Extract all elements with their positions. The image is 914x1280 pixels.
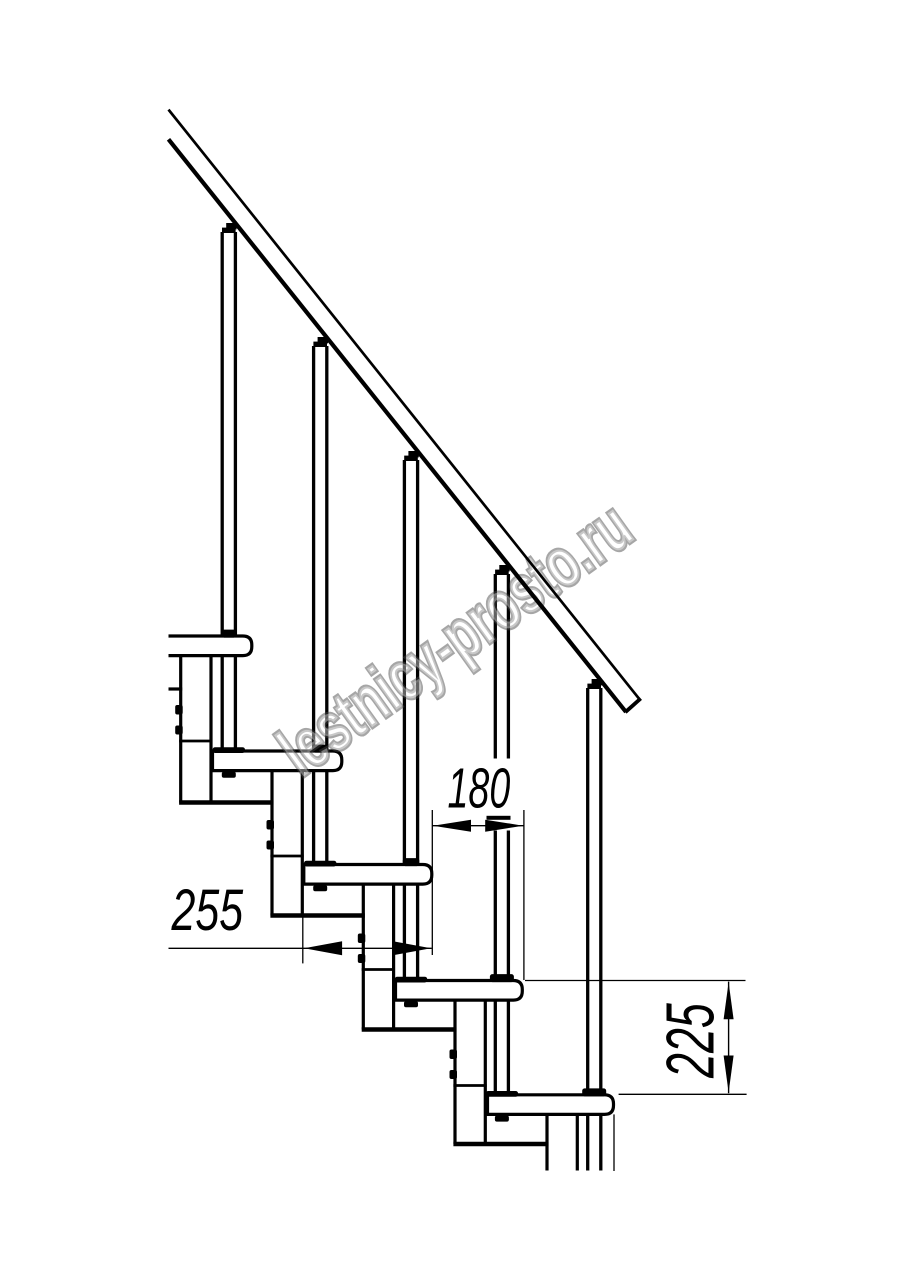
svg-text:255: 255 bbox=[171, 878, 244, 943]
svg-text:180: 180 bbox=[448, 757, 511, 821]
svg-text:225: 225 bbox=[653, 1002, 729, 1078]
